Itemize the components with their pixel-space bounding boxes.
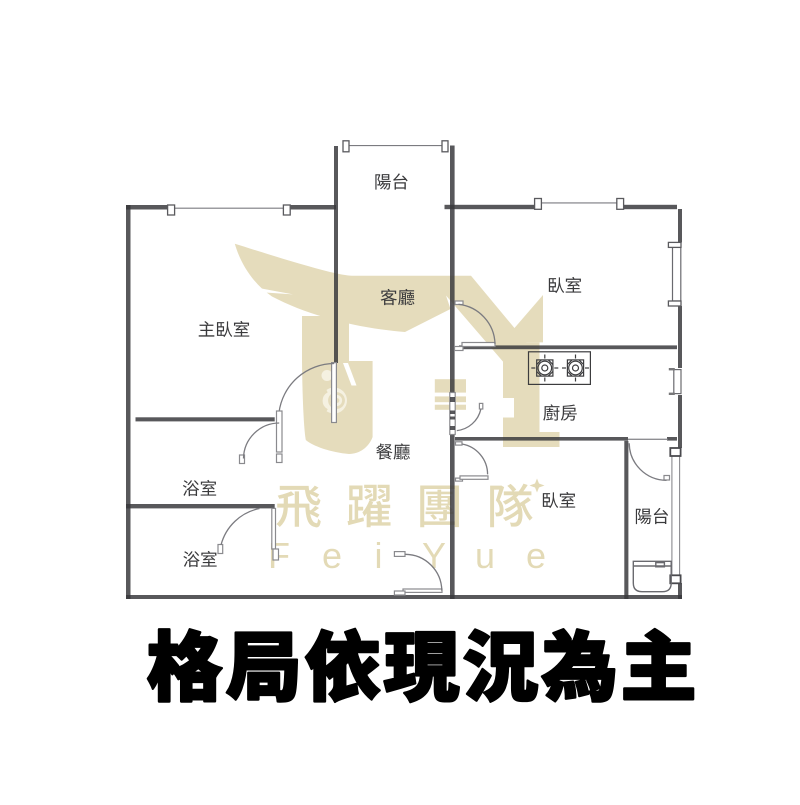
svg-text:e: e <box>322 535 342 576</box>
svg-text:e: e <box>526 535 546 576</box>
svg-text:u: u <box>475 535 495 576</box>
svg-text:i: i <box>375 535 383 576</box>
svg-text:Y: Y <box>422 535 446 576</box>
